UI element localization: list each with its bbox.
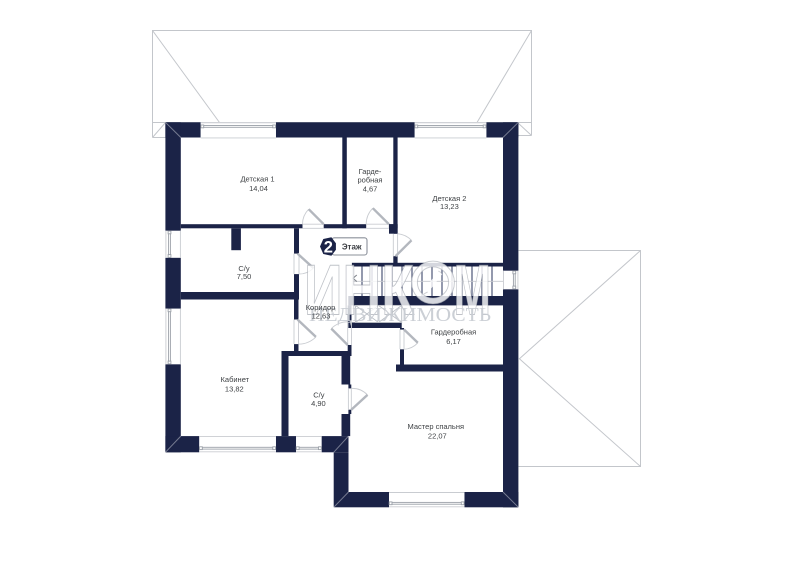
svg-text:7,50: 7,50 xyxy=(237,272,252,281)
svg-text:Гардеробная: Гардеробная xyxy=(431,328,476,337)
svg-text:Детская 1: Детская 1 xyxy=(240,175,274,184)
svg-text:НЕДВИЖИМОСТЬ: НЕДВИЖИМОСТЬ xyxy=(309,305,491,326)
svg-text:12,63: 12,63 xyxy=(312,312,331,321)
svg-text:робная: робная xyxy=(357,176,382,185)
svg-text:13,82: 13,82 xyxy=(225,384,244,393)
svg-text:С/у: С/у xyxy=(313,391,325,400)
svg-text:Кабинет: Кабинет xyxy=(221,375,250,384)
svg-text:13,23: 13,23 xyxy=(440,202,459,211)
svg-text:4,67: 4,67 xyxy=(363,184,378,193)
svg-text:6,17: 6,17 xyxy=(446,337,461,346)
svg-text:Гарде-: Гарде- xyxy=(359,167,382,176)
svg-text:Мастер спальня: Мастер спальня xyxy=(408,422,465,431)
svg-text:4,90: 4,90 xyxy=(311,399,326,408)
svg-text:14,04: 14,04 xyxy=(249,184,268,193)
svg-text:22,07: 22,07 xyxy=(428,432,447,441)
svg-text:Этаж: Этаж xyxy=(342,243,362,252)
